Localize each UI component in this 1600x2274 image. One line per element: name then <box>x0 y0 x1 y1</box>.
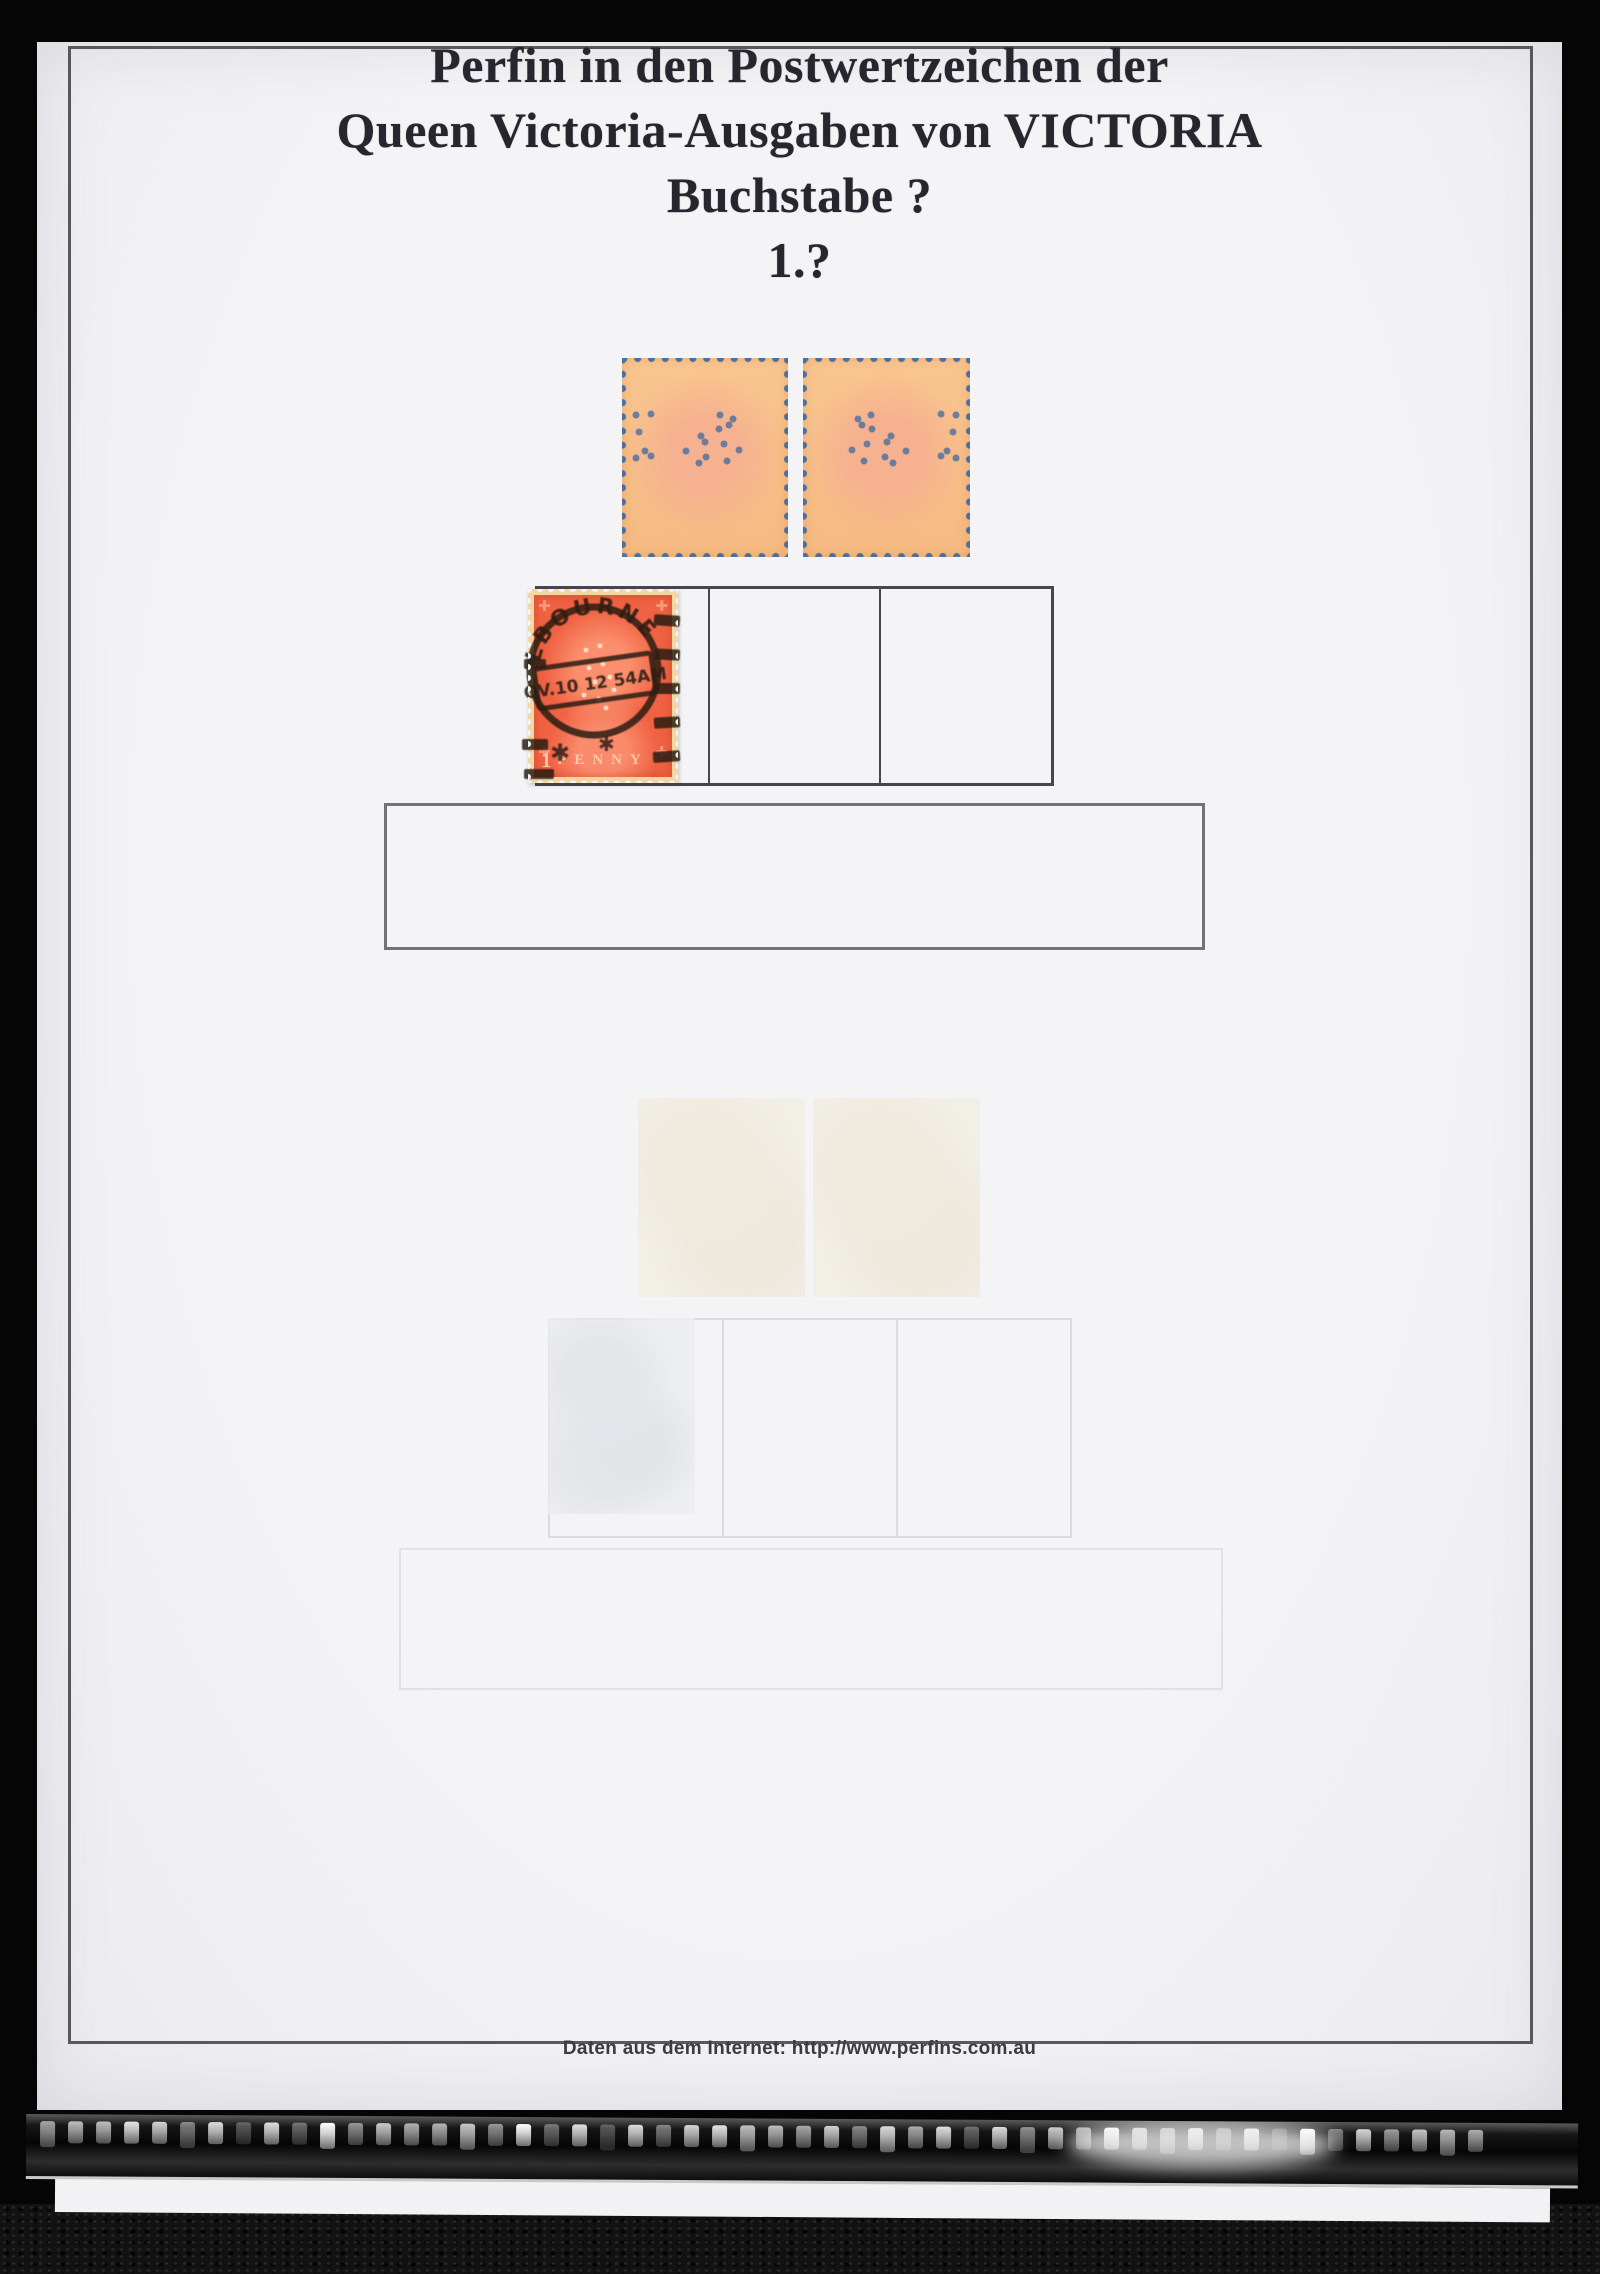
showthrough-cell <box>898 1320 1070 1536</box>
showthrough-cell <box>724 1320 898 1536</box>
melbourne-postmark: LBOURNE OV.10 12 54AM <box>528 589 678 783</box>
showthrough-postmarked-stamp <box>548 1318 695 1514</box>
perfin-stamp-reverse-right <box>803 358 970 557</box>
source-note: Daten aus dem Internet: http://www.perfi… <box>37 2038 1562 2060</box>
page-title: Perfin in den Postwertzeichen der Queen … <box>37 33 1562 293</box>
mount-cell-3 <box>881 589 1051 783</box>
album-binding-strip <box>26 2114 1578 2188</box>
binding-strip-highlight <box>1066 2120 1336 2168</box>
postmark-star-icon: ✱ <box>598 732 615 756</box>
perfin-stamp-reverse-left <box>622 358 788 557</box>
showthrough-stamp-right <box>813 1098 980 1297</box>
page-border-frame <box>68 46 1533 2044</box>
title-line-3: Buchstabe ? <box>37 163 1562 228</box>
title-line-1: Perfin in den Postwertzeichen der <box>37 33 1562 98</box>
postmark-star-icon: ✱ <box>550 739 570 767</box>
description-box <box>384 803 1205 950</box>
showthrough-description-box <box>399 1548 1223 1690</box>
binding-strip-glints <box>40 2121 1578 2156</box>
showthrough-stamp-left <box>638 1098 805 1297</box>
mount-cell-2 <box>710 589 882 783</box>
title-line-2: Queen Victoria-Ausgaben von VICTORIA <box>37 98 1562 163</box>
album-page: Perfin in den Postwertzeichen der Queen … <box>37 42 1562 2110</box>
perfin-hole-pattern <box>622 358 788 557</box>
perfin-hole-pattern <box>803 358 970 557</box>
title-line-4: 1.? <box>37 228 1562 293</box>
stamp-album-scan: Perfin in den Postwertzeichen der Queen … <box>0 0 1600 2274</box>
postmarked-stamp: ✚ ✚ ✚ ✚ PENNY 1 LBOURNE OV.10 12 54AM <box>528 589 678 783</box>
stamp-design: ✚ ✚ ✚ ✚ PENNY 1 LBOURNE OV.10 12 54AM <box>534 595 672 777</box>
